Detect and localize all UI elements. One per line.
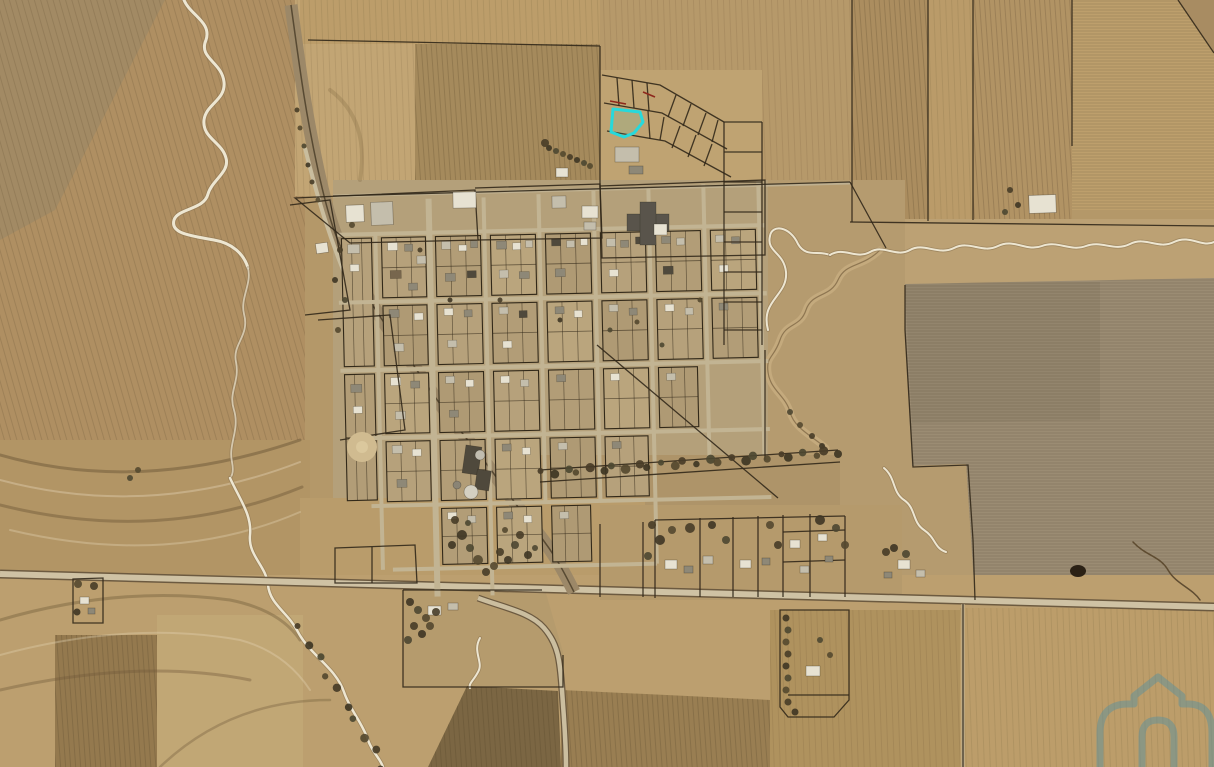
photo-grain-overlay — [0, 0, 1214, 767]
aerial-map-view[interactable] — [0, 0, 1214, 767]
map-canvas[interactable] — [0, 0, 1214, 767]
